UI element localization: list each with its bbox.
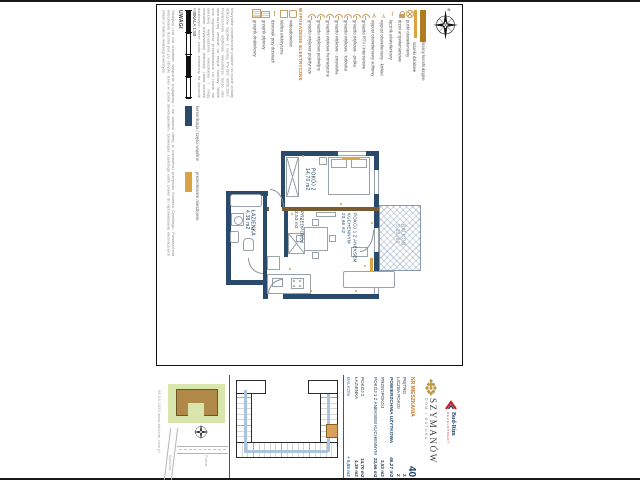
scale-tick [185,32,192,33]
light-wall-icon: Y [379,8,388,18]
light-ceiling-icon: Y [370,8,379,18]
pillow [351,159,367,168]
intercom-icon [288,8,297,18]
room-label-living: POKÓJ 1 Z ANEKSEM KUCHENNYM23,66 m2 [340,213,357,293]
legend-label: wypust oświetleniowy - kinkiet [379,20,384,94]
light-point-icon [405,8,414,18]
wardrobe-bedroom [286,157,299,197]
info-row-apartment-number: NR MIESZKANIA 40 [409,377,414,477]
legend-item: gniazdo wtykowe hermetyczne [325,8,334,96]
socket-rtv-icon [361,8,370,18]
scale-tick [185,54,192,55]
legend-item: / łącznik oświetleniowy [388,8,397,96]
legend-item: grzejnik płytowy [261,8,270,96]
electrical-panel-icon [279,8,288,18]
window-right [374,170,379,194]
light-switch-icon: / [388,8,397,18]
structural-wall-label: ściany konstrukcyjne [421,42,426,94]
overview-corridor [327,394,330,452]
legend-item: tablica elektryczna [279,8,288,96]
burner [299,280,301,282]
washing-machine-drum [234,216,243,225]
burner [293,280,295,282]
door-gap-bedroom [269,207,282,211]
socket-washer-icon [352,8,361,18]
legend-item: grzejnik drabinkowy [252,8,261,96]
legend-item: ! dzwonek przy drzwiach [270,8,279,96]
sink-bath [230,231,239,243]
legend-item: gniazdo wtykowe pojedyncze [307,8,316,96]
swatch-common-areas-label: komunikacja / części wspólne [194,106,199,168]
legend-item: wideodomofon [288,8,297,96]
structural-wall-bar [420,10,426,42]
scale-tick [185,76,192,77]
legend-label: gniazdo wtykowe - zmywarka [334,20,339,94]
room-label-bathroom: ŁAZIENKA4,38 m2 [243,210,255,236]
legend-section-header: WYPOSAŻENIE ELEKTRYCZNE [298,8,303,94]
legend-label: łącznik oświetleniowy [388,20,393,94]
wall-bath-bottom [226,280,266,285]
legend-label: drzwi antywłamaniowe [397,20,402,94]
developer-wordmark: Bud-Rim DEVELOPMENT [446,412,456,462]
room-label-bedroom: POKÓJ 214,70 m2 [303,168,315,191]
radiator-panel-icon [261,8,270,18]
info-row-room2: POKÓJ 214,70 m2 [360,377,365,477]
overview-corridor [244,450,328,453]
chair [329,235,336,242]
street-name: Polna [204,455,208,479]
legend-label: gniazdo wtykowe hermetyczne [325,20,330,94]
entrance-door-gap [268,294,283,299]
legend-label: wideodomofon [288,20,293,94]
legend-label: tablica elektryczna [279,20,284,94]
burner [299,285,301,287]
divider [229,375,230,478]
legend-label: dzwonek przy drzwiach [270,20,275,94]
legend-label: punkt oświetleniowy [405,20,410,94]
legend-item: gniazdo wtykowe - pralka [352,8,361,96]
legend-label: grzejnik płytowy [261,20,266,94]
socket-double-icon [316,8,325,18]
legend-label: grzejnik drabinkowy [252,20,257,94]
legend-item: gniazdo wtykowe - lodówka [343,8,352,96]
road [177,453,228,454]
site-courtyard [188,403,204,416]
window-bedroom [338,151,366,156]
legend-item: Y wypust oświetleniowy - kinkiet [379,8,388,96]
partition-wall-bar [414,10,417,38]
chair [312,252,319,259]
legend-label: wypust oświetleniowy sufitowy [370,20,375,94]
legend-item: gniazdo wtykowe podwójne [316,8,325,96]
legend-label: gniazdo wtykowe - lodówka [343,20,348,94]
divider [343,375,344,478]
socket-sealed-icon [325,8,334,18]
legend-label: gniazdo wtykowe pojedyncze [307,20,312,94]
legend-item: gniazdo wtykowe - zmywarka [334,8,343,96]
info-row-floor: PIĘTRO2 [402,377,407,477]
project-wordmark: SZYMANÓW DOM I NATURA [424,398,438,470]
compass-rose-icon: N [432,6,459,47]
overview-top-right-block [308,380,338,394]
room-label-hallway: PRZEDPOKÓJ3,53 m2 [293,211,305,244]
info-row-total-area: POWIERZCHNIA UŻYTKOWA46,27 m2 [388,377,393,477]
road [177,446,228,447]
doorbell-icon: ! [270,8,279,18]
info-row-bathroom: ŁAZIENKA4,38 m2 [354,377,359,477]
info-row-room1: POKÓJ 1 Z ANEKSEM KUCHENNYM23,66 m2 [367,377,378,477]
floor-plan-sheet: Niniejszy rzut ma charakter wyłącznie po… [0,0,640,480]
date-and-url: 08.05.2025 www.bud-rim.com.pl [157,390,161,478]
legend-item: Y wypust oświetleniowy sufitowy [370,8,379,96]
street-name: Szkolna [168,455,172,479]
legend-label: gniazdo wtykowe - pralka [352,20,357,94]
notes-paragraph-1: Niniejszy rzut ma charakter wyłącznie po… [162,10,175,256]
nightstand [319,157,327,165]
socket-single-icon [307,8,316,18]
notes-paragraph-2: Wszystkie powierzchnie podane na rzucie … [199,8,234,98]
socket-dishwasher-icon [334,8,343,18]
radiator-ladder-icon [252,8,261,18]
scale-tick [185,10,192,11]
overview-top-left-block [236,380,266,394]
overview-corridor [244,390,247,450]
swatch-common-areas [185,106,192,126]
info-row-hallway: PRZEDPOKÓJ3,53 m2 [380,377,385,477]
scale-bar [186,11,191,99]
legend-item: gniazdo RTV / internetowe [361,8,370,96]
radiator [342,157,360,160]
radiator [370,258,373,272]
legend-label: gniazdo RTV / internetowe [361,20,366,94]
road-centerline [179,449,226,450]
scale-tick [185,97,192,98]
fridge [267,256,280,270]
room-label-balcony: BALKON5,85 m2 [393,224,405,246]
swatch-apartment [185,172,192,192]
overview-highlighted-unit [326,424,338,438]
compass-north-letter: N [448,7,451,12]
info-row-balcony: BALKON+ 5,85 m2 [346,377,351,477]
toilet [243,238,254,251]
dining-table [304,227,328,251]
bathtub [230,194,262,207]
pillow [331,159,347,168]
site-compass-icon [193,424,209,445]
burner [293,285,295,287]
partition-wall-label: ścianki działowe [412,42,417,94]
chair [312,219,319,226]
socket-fridge-icon [343,8,352,18]
swatch-apartment-label: prezentowane mieszkanie [194,172,199,234]
top-edge [0,0,640,2]
info-row-rooms-count: LICZBA POKOI2 [396,377,401,477]
legend-label: gniazdo wtykowe podwójne [316,20,321,94]
tv-unit [316,212,336,217]
notes-title: UWAGI [177,10,183,40]
